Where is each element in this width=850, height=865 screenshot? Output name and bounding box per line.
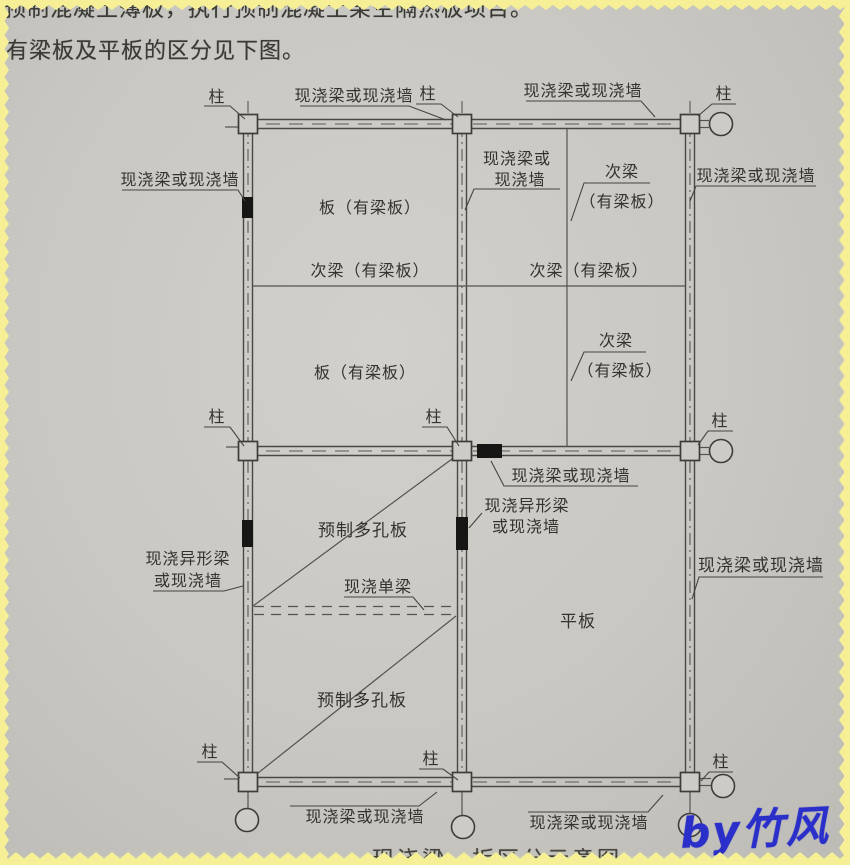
single-beam-dashed <box>254 607 457 615</box>
precast-slab-diagonals <box>253 456 456 777</box>
label-flat-slab: 平板 <box>560 612 596 632</box>
label-slab-with-beam-1: 板（有梁板） <box>319 198 421 217</box>
label-secondary-beam-mid-line2: （有梁板） <box>577 361 662 380</box>
label-beam-wall-below-mid: 现浇梁或现浇墙 <box>511 466 630 485</box>
axis-bubbles <box>236 113 735 839</box>
label-beam-wall-inner-line1: 现浇梁或 <box>483 149 551 168</box>
label-column-bottom-left: 柱 <box>201 742 218 761</box>
label-secondary-beam-upper-line1: 次梁 <box>605 162 639 181</box>
label-shaped-beam-mid-line1: 现浇异形梁 <box>484 496 569 515</box>
axis-bubble-bottom-left <box>236 809 259 832</box>
watermark-signature: by竹风 <box>679 792 831 861</box>
label-beam-wall-inner-line2: 现浇墙 <box>494 170 545 189</box>
label-beam-wall-bottom-right: 现浇梁或现浇墙 <box>529 813 648 832</box>
label-beam-wall-right-lower: 现浇梁或现浇墙 <box>698 556 824 576</box>
label-shaped-beam-left-line2: 或现浇墙 <box>154 571 222 590</box>
label-secondary-beam-h-left: 次梁（有梁板） <box>310 261 429 280</box>
label-single-beam: 现浇单梁 <box>344 577 412 596</box>
label-column-bottom-middle: 柱 <box>422 749 439 768</box>
axis-bubble-top-right <box>710 113 733 136</box>
label-column-top-right: 柱 <box>715 84 732 103</box>
label-beam-wall-top-right: 现浇梁或现浇墙 <box>523 81 642 100</box>
label-slab-with-beam-2: 板（有梁板） <box>314 363 416 382</box>
scanned-page: 预制混凝土薄板，执行预制混凝土架空隔热板项目。 有梁板及平板的区分见下图。 <box>0 0 850 865</box>
label-column-mid-left: 柱 <box>208 407 225 426</box>
axis-bubble-bottom-middle <box>452 816 475 839</box>
label-column-mid-middle: 柱 <box>425 407 442 426</box>
label-shaped-beam-left-line1: 现浇异形梁 <box>145 549 230 568</box>
label-column-top-left: 柱 <box>208 87 225 106</box>
label-beam-wall-left: 现浇梁或现浇墙 <box>120 170 239 189</box>
axis-bubble-bottom-right <box>712 775 735 798</box>
label-beam-wall-bottom-left: 现浇梁或现浇墙 <box>305 807 424 826</box>
label-column-bottom-right: 柱 <box>712 752 729 771</box>
label-precast-slab-1: 预制多孔板 <box>318 521 408 541</box>
axis-bubble-mid-right <box>710 440 733 463</box>
structural-plan-diagram: 柱 现浇梁或现浇墙 柱 现浇梁或现浇墙 柱 现浇梁或现浇墙 现浇梁或现浇墙 现浇… <box>0 0 850 865</box>
label-beam-wall-top-left: 现浇梁或现浇墙 <box>294 86 413 105</box>
label-column-mid-right: 柱 <box>711 411 728 430</box>
label-secondary-beam-mid-line1: 次梁 <box>599 331 633 350</box>
columns <box>239 115 700 792</box>
label-secondary-beam-h-right: 次梁（有梁板） <box>529 261 648 280</box>
label-column-top-middle: 柱 <box>419 84 436 103</box>
label-shaped-beam-mid-line2: 或现浇墙 <box>492 517 560 536</box>
label-secondary-beam-upper-line2: （有梁板） <box>579 192 664 211</box>
label-precast-slab-2: 预制多孔板 <box>317 691 407 711</box>
label-beam-wall-right-upper: 现浇梁或现浇墙 <box>696 166 815 185</box>
